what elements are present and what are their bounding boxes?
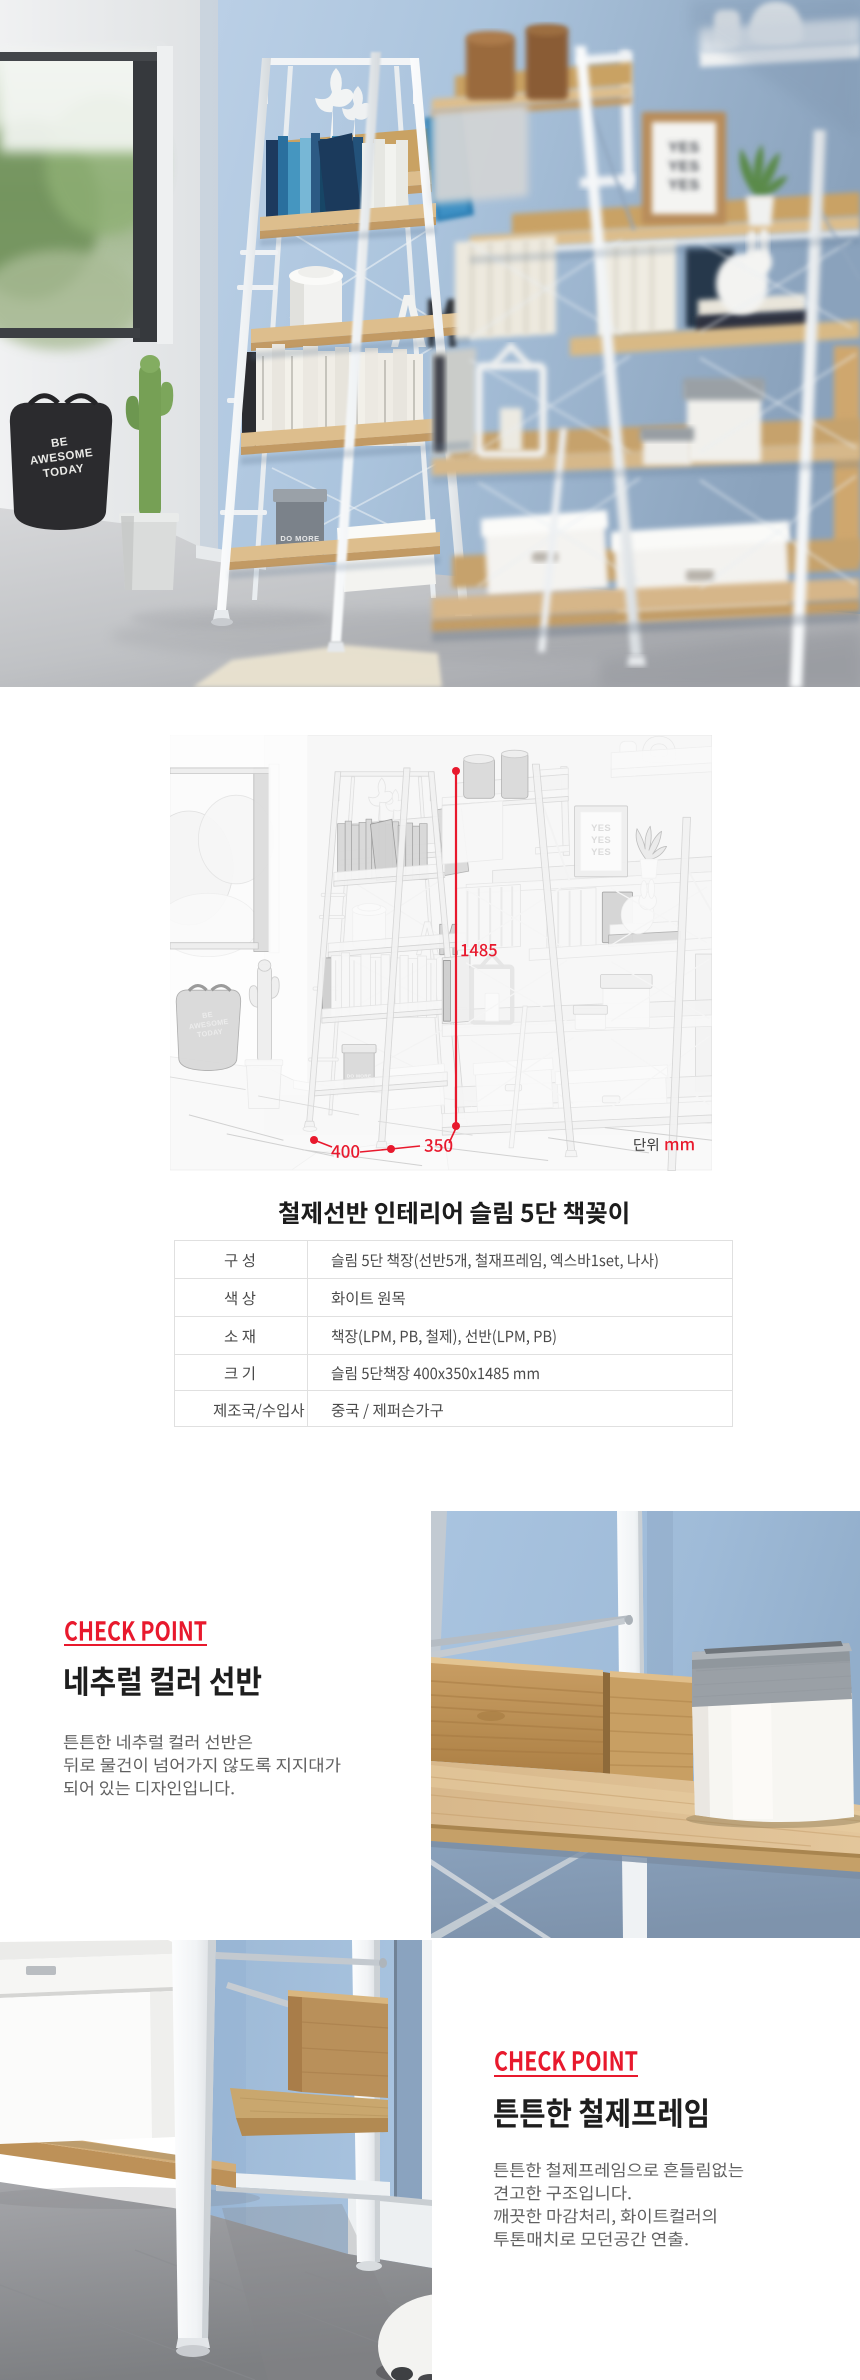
svg-text:YES: YES [668,158,700,175]
svg-text:YES: YES [668,177,700,194]
svg-text:BE: BE [50,436,68,450]
svg-text:YES: YES [668,139,700,156]
